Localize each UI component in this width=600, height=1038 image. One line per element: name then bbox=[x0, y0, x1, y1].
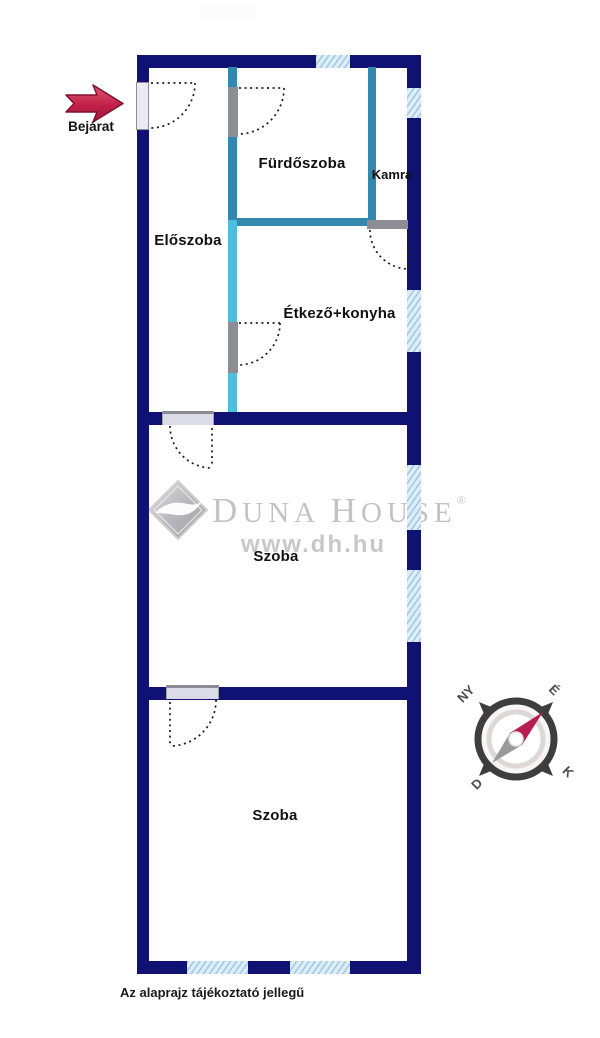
entrance-label: Bejárat bbox=[55, 119, 127, 134]
compass-label-ne: É bbox=[546, 681, 563, 698]
room-label-szoba-2: Szoba bbox=[245, 807, 305, 824]
disclaimer-note: Az alaprajz tájékoztató jellegű bbox=[120, 985, 304, 1000]
compass-label-se: K bbox=[560, 763, 578, 781]
room-label-etkezo-konyha: Étkező+konyha bbox=[272, 305, 407, 322]
room-label-eloszoba: Előszoba bbox=[148, 232, 228, 249]
entrance-arrow-icon bbox=[66, 85, 123, 122]
compass-hub bbox=[509, 732, 523, 746]
compass-rose: NY É D K bbox=[455, 675, 580, 800]
floor-plan-image: DUNA HOUSE® www.dh.hu bbox=[0, 0, 600, 1038]
compass-label-sw: D bbox=[468, 775, 485, 792]
room-label-kamra: Kamra bbox=[366, 167, 418, 182]
room-label-szoba-1: Szoba bbox=[246, 548, 306, 565]
compass-label-nw: NY bbox=[454, 682, 478, 706]
room-label-furdoszoba: Fürdőszoba bbox=[252, 155, 352, 172]
